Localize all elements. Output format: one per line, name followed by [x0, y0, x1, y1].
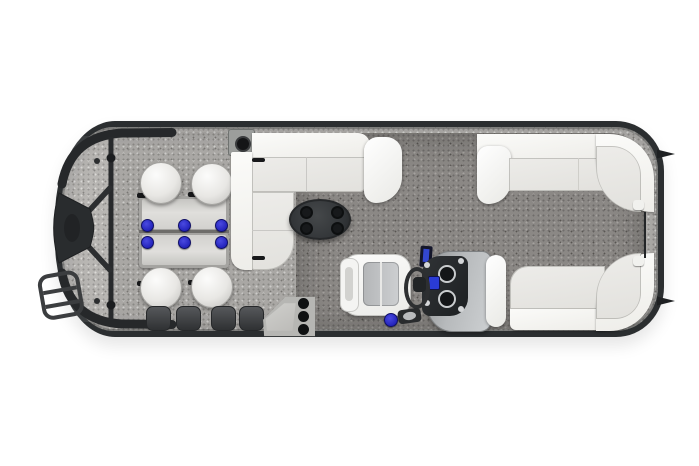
dash-corner-dot	[458, 258, 464, 264]
table-cupholder	[331, 222, 344, 235]
wheel-hub	[413, 277, 426, 292]
stern-top-armrest	[477, 146, 511, 204]
fence-knob-bottom	[107, 301, 116, 310]
step-dot	[298, 324, 309, 335]
throttle-knob	[403, 311, 417, 321]
table-cupholder	[178, 219, 191, 232]
speaker-cone	[235, 136, 251, 152]
chair-insert-seam	[380, 262, 382, 306]
lounge-seat-seam	[306, 157, 307, 192]
lounge-top-backrest	[252, 133, 370, 157]
lounge-seat-seam	[252, 230, 294, 231]
seat-nub	[633, 256, 644, 266]
floor-recess	[146, 306, 171, 331]
step-dot	[298, 298, 309, 309]
bow-nose-shadow	[64, 214, 80, 242]
dinette-stool	[140, 267, 182, 309]
seat-hinge	[252, 158, 265, 162]
floor-recess	[211, 306, 236, 331]
headrest-slit	[345, 267, 353, 301]
lounge-left-backrest	[231, 152, 252, 270]
bow-gate-brace-bottom	[87, 245, 110, 270]
dash-corner-dot	[424, 262, 430, 268]
deck-foot-bottom	[94, 298, 100, 304]
seat-hinge	[252, 256, 265, 260]
stern-top-seat	[509, 158, 605, 191]
dash-corner-dot	[458, 306, 464, 312]
rear-entry-gate	[644, 212, 646, 258]
cocktail-table	[289, 199, 351, 240]
table-cupholder	[215, 236, 228, 249]
helm-cupholder	[384, 313, 398, 327]
table-cupholder	[300, 206, 313, 219]
fence-knob-top	[107, 154, 116, 163]
deck-foot-top	[94, 158, 100, 164]
chair-headrest	[340, 258, 359, 312]
console-side-arm	[486, 255, 506, 327]
dash-gauge	[438, 265, 456, 283]
pontoon-floorplan-scene	[0, 0, 699, 466]
table-cupholder	[300, 222, 313, 235]
stern-top-seat-seam	[578, 158, 579, 191]
seat-nub	[633, 200, 644, 210]
lounge-armrest	[364, 137, 402, 203]
table-cupholder	[331, 206, 344, 219]
stern-bottom-backrest	[510, 308, 605, 330]
table-cupholder	[141, 236, 154, 249]
dinette-stool	[191, 163, 233, 205]
table-cupholder	[178, 236, 191, 249]
dinette-stool	[140, 162, 182, 204]
dash-gauge	[438, 290, 456, 308]
table-cupholder	[215, 219, 228, 232]
lounge-top-seat	[252, 157, 366, 192]
dinette-stool	[191, 266, 233, 308]
stern-bottom-seat	[510, 266, 605, 309]
floor-recess	[176, 306, 201, 331]
step-dot	[298, 311, 309, 322]
table-cupholder	[141, 219, 154, 232]
floor-recess	[239, 306, 264, 331]
